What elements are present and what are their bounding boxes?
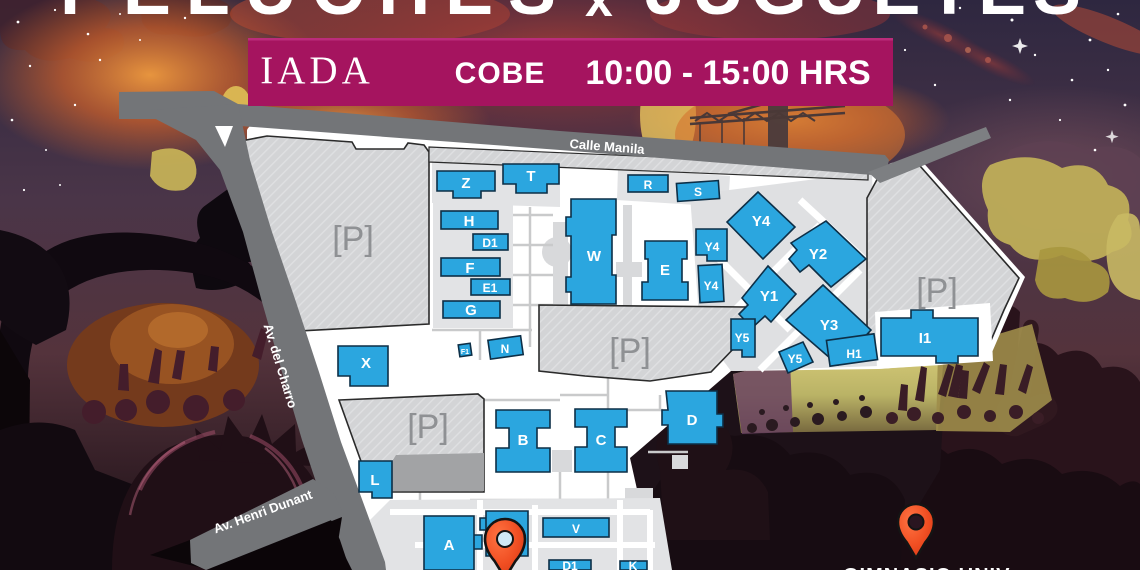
svg-text:COBE: COBE: [455, 57, 546, 90]
svg-text:Y3: Y3: [820, 317, 838, 334]
svg-text:A: A: [444, 537, 455, 554]
svg-text:Y4: Y4: [704, 279, 719, 293]
svg-text:G: G: [465, 302, 477, 319]
svg-text:Y2: Y2: [809, 246, 827, 263]
svg-text:D1: D1: [482, 236, 498, 250]
svg-text:E1: E1: [483, 281, 498, 295]
svg-text:D: D: [687, 412, 698, 429]
svg-text:R: R: [644, 178, 653, 192]
svg-text:C: C: [596, 432, 607, 449]
svg-text:F1: F1: [461, 349, 469, 356]
svg-text:N: N: [501, 342, 510, 356]
svg-text:IADA: IADA: [260, 49, 373, 92]
svg-text:W: W: [587, 248, 602, 265]
svg-text:Y1: Y1: [760, 288, 778, 305]
svg-text:x: x: [585, 0, 613, 27]
svg-text:E: E: [660, 262, 670, 279]
svg-text:[P]: [P]: [609, 332, 651, 370]
svg-text:V: V: [572, 522, 580, 536]
svg-text:S: S: [694, 185, 702, 199]
svg-text:K: K: [629, 559, 638, 570]
svg-text:D1: D1: [562, 559, 578, 570]
svg-text:[P]: [P]: [407, 408, 449, 446]
svg-text:Z: Z: [461, 175, 470, 192]
svg-text:F: F: [465, 260, 474, 277]
svg-text:[P]: [P]: [916, 272, 958, 310]
svg-text:T: T: [526, 168, 535, 185]
svg-text:GIMNASIO UNIV: GIMNASIO UNIV: [843, 565, 1010, 570]
svg-text:H1: H1: [846, 347, 862, 361]
svg-text:Y5: Y5: [788, 352, 803, 366]
svg-text:X: X: [361, 355, 371, 372]
svg-text:[P]: [P]: [332, 220, 374, 258]
svg-text:H: H: [464, 213, 475, 230]
svg-text:10:00 - 15:00 HRS: 10:00 - 15:00 HRS: [585, 54, 870, 92]
svg-text:Y5: Y5: [735, 331, 750, 345]
svg-text:B: B: [518, 432, 529, 449]
svg-text:Y4: Y4: [705, 240, 720, 254]
svg-text:JUGUETES: JUGUETES: [645, 0, 1085, 30]
svg-text:Y4: Y4: [752, 213, 771, 230]
svg-text:L: L: [370, 472, 379, 489]
svg-text:I1: I1: [919, 330, 932, 347]
